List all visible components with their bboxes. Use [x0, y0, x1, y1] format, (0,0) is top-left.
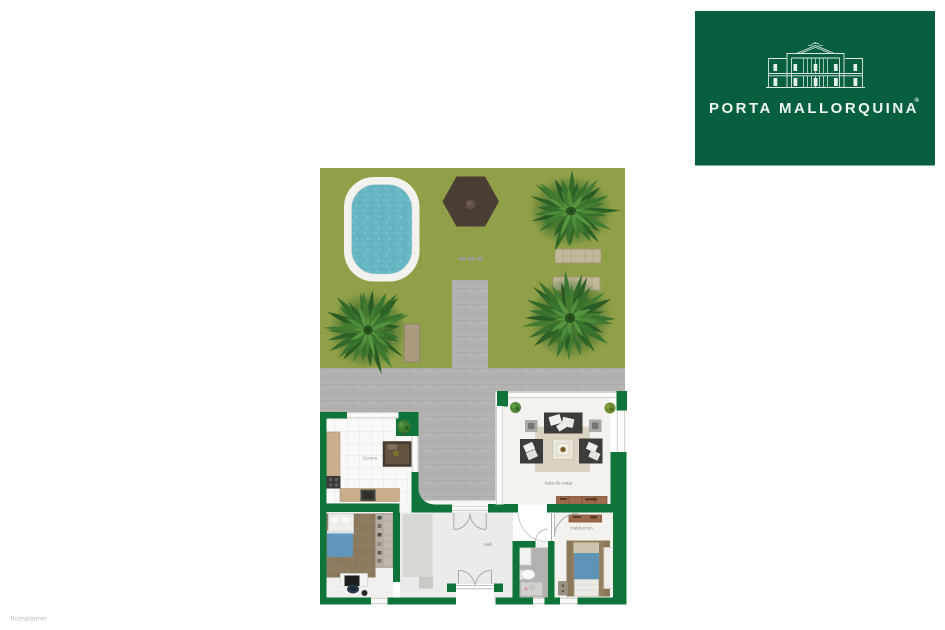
svg-text:Cocina: Cocina	[363, 456, 378, 461]
svg-text:®: ®	[915, 97, 920, 104]
svg-text:floorplanner: floorplanner	[11, 616, 47, 623]
svg-text:PORTA MALLORQUINA: PORTA MALLORQUINA	[709, 100, 919, 117]
svg-text:Habitación: Habitación	[570, 526, 593, 532]
svg-text:Hall: Hall	[483, 542, 491, 548]
svg-text:Sala de estar: Sala de estar	[544, 481, 573, 487]
